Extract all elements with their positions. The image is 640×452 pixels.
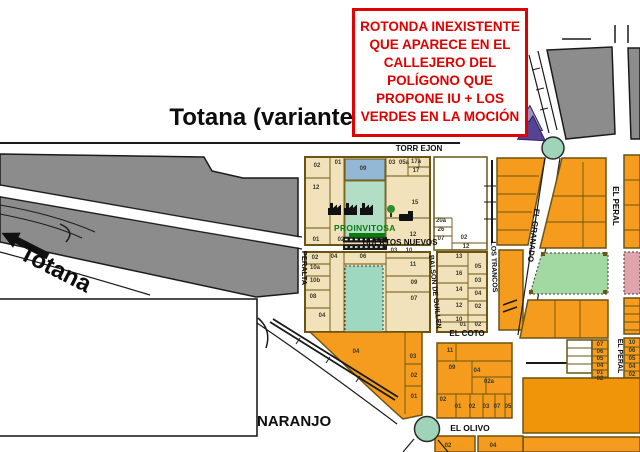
street-label: TORR EJON — [396, 144, 443, 153]
naranjo-label: NARANJO — [257, 413, 332, 430]
parcel-number: 08 — [310, 294, 317, 300]
parcel-number: 09 — [411, 280, 418, 286]
parcel-number: 05 — [475, 264, 482, 270]
parcel-number: 02 — [440, 397, 447, 403]
parcel-number: 02a — [484, 379, 495, 385]
parcel-number: 06 — [629, 348, 636, 354]
map-canvas: Totana NARANJO PROINVITOSA TORR EJONHUER… — [0, 0, 640, 452]
parcel-number: 12 — [313, 185, 320, 191]
annotation-line: CALLEJERO DEL — [355, 54, 525, 72]
parcel-number: 04 — [475, 291, 482, 297]
map-title: Totana (variante — [0, 104, 353, 132]
parcel-number: 05 — [505, 404, 512, 410]
tree-icon — [387, 205, 395, 213]
large-south-parcel — [523, 378, 640, 433]
parcel-number: 16 — [456, 271, 463, 277]
blank-cover-box — [0, 299, 257, 436]
parcel-number: 01 — [335, 160, 342, 166]
parcel-number: 12 — [463, 244, 470, 250]
annotation-line: ROTONDA INEXISTENTE — [355, 18, 525, 36]
annotation-line: PROPONE IU + LOS — [355, 90, 525, 108]
street-label: EL PERAL — [616, 339, 623, 374]
parcel-number: 10a — [310, 265, 321, 271]
parcel-number: 06 — [360, 254, 367, 260]
parcel-number: 07 — [411, 296, 418, 302]
parcel-number: 20a — [436, 218, 447, 224]
proinvitosa-bar — [349, 233, 385, 238]
street-label: EL COTO — [449, 329, 484, 338]
parcel-number: 13 — [456, 254, 463, 260]
parcel-number: 02 — [469, 404, 476, 410]
parcel-number: 04 — [490, 443, 497, 449]
green-zone-granado — [530, 253, 608, 294]
pink-zone — [624, 252, 640, 294]
parcel-number: 01 — [455, 404, 462, 410]
parcel-number: 09 — [449, 365, 456, 371]
wedge-blocks — [310, 332, 422, 419]
parcel-number: 04 — [474, 368, 481, 374]
map-image: Totana NARANJO PROINVITOSA TORR EJONHUER… — [0, 0, 640, 452]
parcel-number: 05 — [629, 356, 636, 362]
parcel-number: 02 — [445, 443, 452, 449]
parcel-number: 02 — [629, 372, 636, 378]
parcel-number: 15 — [412, 200, 419, 206]
parcel-number: 03 — [389, 160, 396, 166]
roundabout-bottom — [415, 417, 440, 442]
annotation-line: POLÍGONO QUE — [355, 72, 525, 90]
parcel-number: 02 — [338, 237, 345, 243]
annotation-box: ROTONDA INEXISTENTE QUE APARECE EN EL CA… — [352, 8, 528, 137]
annotation-line: QUE APARECE EN EL — [355, 36, 525, 54]
street-label: EL OLIVO — [450, 423, 490, 433]
parcel-number: 09 — [360, 166, 367, 172]
parcel-number: 10 — [629, 340, 636, 346]
proinvitosa-label: PROINVITOSA — [334, 223, 396, 233]
parcel-number: 02 — [597, 376, 604, 382]
block-trancos-east — [499, 250, 523, 330]
parcel-number: 02 — [314, 163, 321, 169]
parcel-number: 17 — [413, 168, 420, 174]
parcel-number: 04 — [597, 363, 604, 369]
parcel-number: 07 — [438, 236, 445, 242]
parcel-number: 02 — [475, 322, 482, 328]
parcel-number: 11 — [410, 262, 417, 268]
parcel-number: 02 — [475, 304, 482, 310]
street-label: HUERTOS NUEVOS — [363, 238, 439, 247]
parcel-number: 17a — [411, 159, 422, 165]
street-label: EL PERAL — [611, 186, 620, 226]
parcel-number: 07 — [494, 404, 501, 410]
parcel-number: 06 — [597, 349, 604, 355]
parcel-number: 02 — [411, 373, 418, 379]
parcel-number: 05 — [597, 356, 604, 362]
parcel-number: 04 — [353, 349, 360, 355]
street-label: LOS TRANCOS — [489, 241, 498, 292]
parcel-number: 01 — [411, 394, 418, 400]
parcel-number: 04 — [331, 254, 338, 260]
parcel-number: 10 — [406, 248, 413, 254]
parcel-number: 02 — [461, 235, 468, 241]
parcel-number: 12 — [410, 232, 417, 238]
parcel-number: 12 — [456, 303, 463, 309]
parcel-number: 05a — [399, 160, 410, 166]
parcel-number: 11 — [447, 348, 454, 354]
parcel-number: 01 — [313, 237, 320, 243]
parcel-number: 03 — [391, 248, 398, 254]
north-blocks — [529, 25, 640, 139]
street-label: PERALTA — [300, 251, 309, 286]
parcel-number: 02 — [312, 255, 319, 261]
parcel-number: 03 — [483, 404, 490, 410]
parcel-number: 03 — [475, 278, 482, 284]
green-zone-b — [345, 266, 383, 332]
parcel-number: 01 — [460, 322, 467, 328]
parcel-number: 03 — [410, 354, 417, 360]
parcel-number: 26 — [438, 227, 445, 233]
parcel-number: 10b — [310, 278, 321, 284]
parcel-number: 04 — [629, 364, 636, 370]
parcel-number: 07 — [597, 342, 604, 348]
annotation-line: VERDES EN LA MOCIÓN — [355, 108, 525, 126]
parcel-number: 14 — [456, 287, 463, 293]
parcel-number: 04 — [319, 313, 326, 319]
